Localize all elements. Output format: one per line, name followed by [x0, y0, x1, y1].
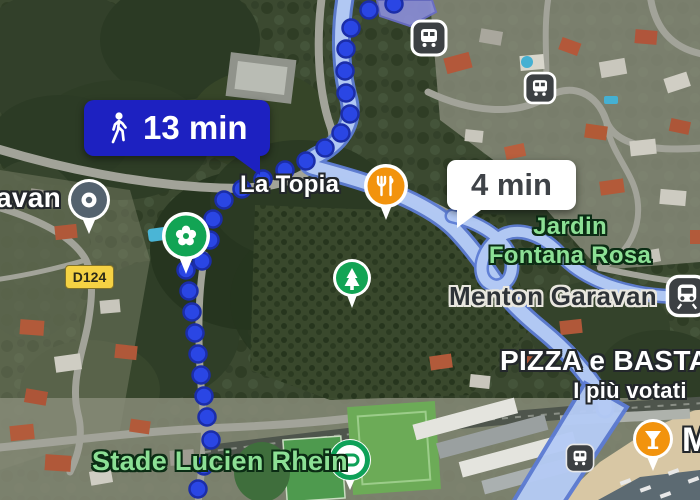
poi-label-pizza-e-basta[interactable]: PIZZA e BASTA	[500, 345, 685, 377]
bus-stop-icon[interactable]	[412, 21, 446, 55]
map-canvas[interactable]: avan La Topia Jardin Fontana Rosa Menton…	[0, 0, 700, 500]
poi-label-la-topia[interactable]: La Topia	[240, 171, 360, 199]
poi-label-jardin[interactable]: Jardin	[490, 213, 650, 241]
road-badge-d124: D124	[65, 265, 114, 289]
poi-sublabel-i-piu-votati: I più votati	[560, 378, 700, 404]
poi-label-garavan-partial[interactable]: avan	[0, 182, 61, 214]
walking-person-icon	[106, 111, 130, 145]
locality-label-menton-garavan[interactable]: Menton Garavan	[443, 281, 663, 312]
segment-time-text: 4 min	[471, 167, 552, 203]
poi-label-stade-lucien-rhein[interactable]: Stade Lucien Rhein	[92, 446, 327, 477]
bus-stop-icon[interactable]	[525, 73, 555, 103]
bus-stop-icon[interactable]	[566, 444, 593, 471]
segment-time-bubble[interactable]: 4 min	[447, 160, 576, 210]
train-station-icon[interactable]	[667, 276, 700, 315]
walking-time-text: 13 min	[143, 109, 248, 147]
poi-label-fontana-rosa[interactable]: Fontana Rosa	[470, 242, 670, 270]
walking-time-bubble[interactable]: 13 min	[84, 100, 270, 156]
poi-label-partial-m[interactable]: M	[682, 421, 700, 460]
